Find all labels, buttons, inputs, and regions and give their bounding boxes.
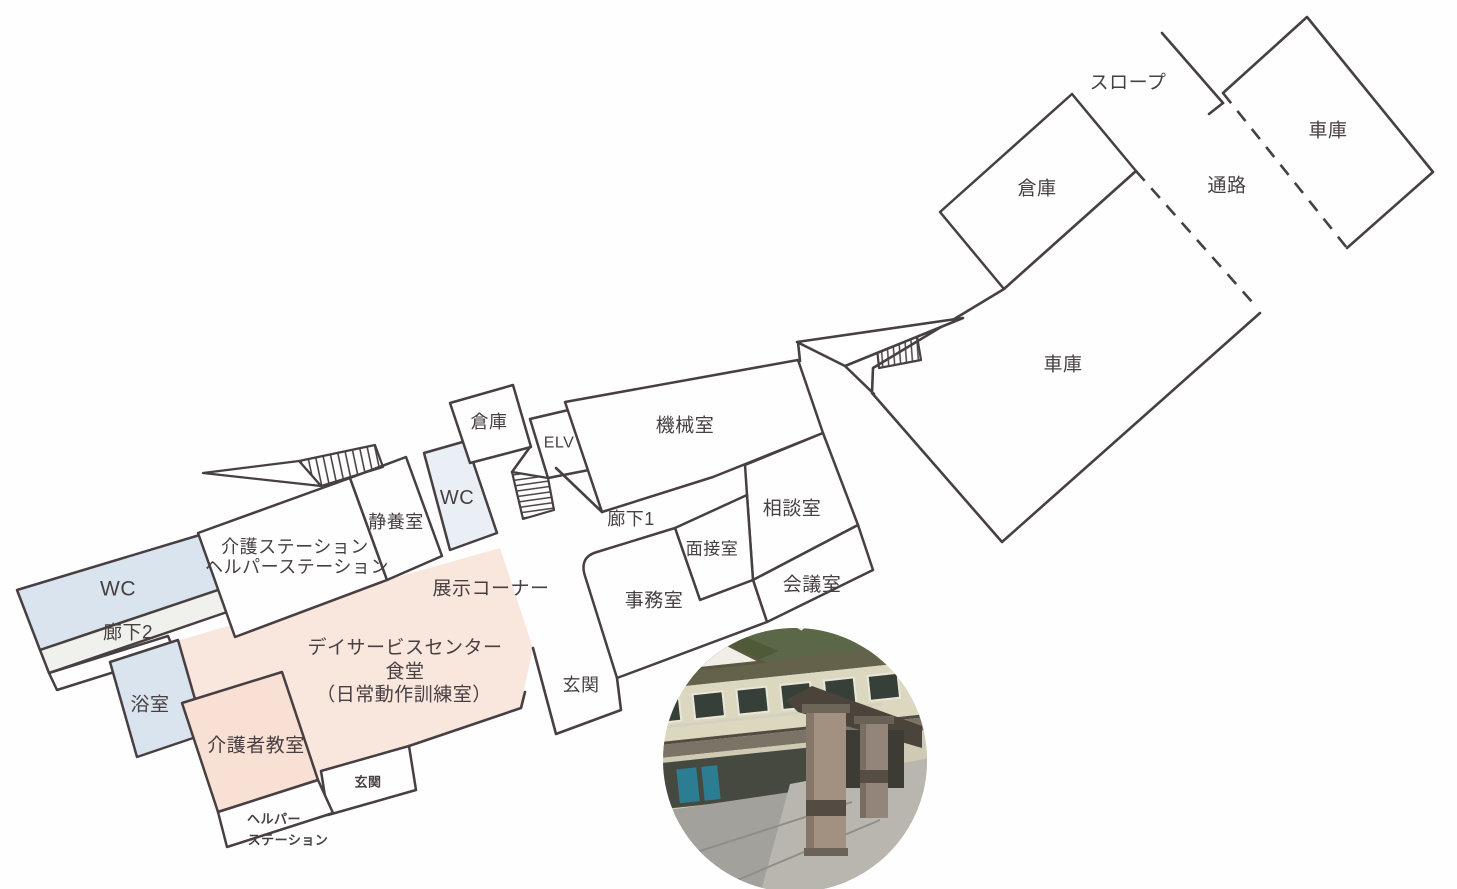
label-bathroom: 浴室 — [130, 694, 169, 716]
label-entrance-bottom: 玄関 — [354, 775, 381, 790]
label-storage-mid: 倉庫 — [471, 412, 508, 432]
label-machine-room: 機械室 — [656, 415, 715, 437]
label-entrance-main: 玄関 — [563, 675, 600, 695]
connector-stub — [798, 342, 800, 361]
label-exhibit-corner: 展示コーナー — [432, 579, 549, 600]
label-helper-station-1: ステーション — [248, 833, 329, 848]
label-wc-left: WC — [100, 578, 136, 601]
label-interview-room: 面接室 — [686, 540, 739, 559]
label-helper-station: ヘルパー — [247, 812, 301, 827]
label-slope: スロープ — [1090, 72, 1167, 94]
label-elevator: ELV — [544, 435, 575, 452]
label-consult-room: 相談室 — [763, 498, 822, 520]
connector-link — [845, 366, 874, 394]
label-caregiver-classroom: 介護者教室 — [207, 735, 305, 757]
label-garage-main: 車庫 — [1043, 354, 1082, 376]
photo-pillar-rear — [854, 716, 894, 818]
label-dayservice-hall-2: （日常動作訓練室） — [316, 684, 492, 706]
floor-plan-canvas: デイサービスセンター食堂（日常動作訓練室）WC廊下2浴室介護ステーションヘルパー… — [0, 0, 1457, 889]
stairs-upper-blade — [203, 461, 321, 486]
photo-entrance-glass-1 — [676, 767, 699, 803]
label-office: 事務室 — [625, 590, 684, 612]
label-dayservice-hall: デイサービスセンター — [307, 637, 502, 659]
label-dayservice-hall-1: 食堂 — [385, 661, 424, 683]
label-wc-mid: WC — [440, 487, 474, 509]
photo-pillar-front — [802, 704, 850, 856]
label-garage-top: 車庫 — [1308, 120, 1347, 142]
slope-line — [1162, 33, 1223, 103]
label-meeting-room: 会議室 — [783, 574, 842, 596]
label-care-station-1: ヘルパーステーション — [205, 557, 389, 577]
stairs-mid-hatch — [512, 472, 554, 519]
label-care-station: 介護ステーション — [221, 537, 369, 557]
label-rest-room: 静養室 — [368, 512, 424, 532]
label-corridor-1: 廊下1 — [607, 509, 655, 529]
slope-tick — [1209, 103, 1223, 114]
label-passage: 通路 — [1207, 175, 1246, 197]
label-corridor-2: 廊下2 — [103, 622, 153, 644]
floor-plan-page: デイサービスセンター食堂（日常動作訓練室）WC廊下2浴室介護ステーションヘルパー… — [0, 0, 1457, 889]
label-storage-top: 倉庫 — [1017, 178, 1056, 200]
